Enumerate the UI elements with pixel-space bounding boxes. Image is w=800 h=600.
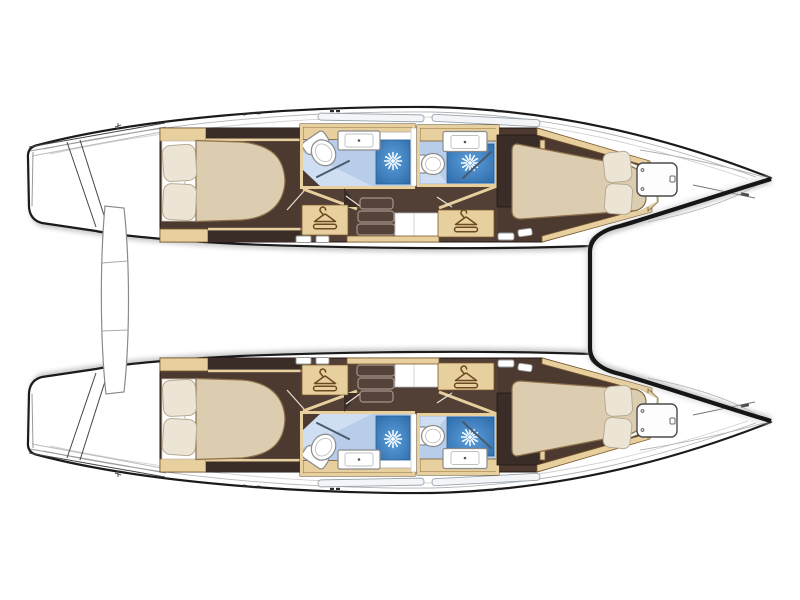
aft-cabin-locker	[208, 229, 303, 242]
pillow	[162, 418, 197, 456]
pillow	[604, 183, 633, 215]
aft-cabin-shelf	[160, 229, 208, 242]
pillow	[162, 183, 197, 221]
pillow	[603, 417, 633, 450]
sink-icon	[338, 450, 380, 469]
pillow	[604, 385, 633, 417]
wardrobe	[302, 205, 348, 235]
aft-cabin-berth	[162, 379, 285, 460]
pillow	[162, 144, 197, 182]
deck-window-strip	[318, 478, 424, 487]
toilet-icon	[418, 154, 445, 175]
floor-plan-canvas	[0, 0, 800, 600]
forward-bathroom	[417, 413, 499, 475]
sole-trim	[347, 236, 439, 242]
bed-mattress	[196, 379, 285, 460]
sink-icon	[443, 132, 487, 152]
aft-cabin-shelf	[160, 459, 206, 472]
bow-deck-hatch	[637, 404, 677, 437]
aft-cabin-locker	[208, 358, 303, 371]
wardrobe	[438, 363, 494, 390]
stair-landing	[395, 213, 440, 237]
bed-mattress	[196, 141, 285, 222]
shelf-trim	[208, 228, 303, 231]
catamaran-floor-plan	[0, 0, 800, 600]
aft-cabin-shelf	[160, 128, 206, 141]
stern-crossbar	[101, 206, 129, 394]
pillow	[162, 379, 197, 417]
stair-landing	[395, 363, 440, 387]
sink-icon	[443, 449, 487, 469]
wardrobe	[302, 365, 348, 395]
aft-cabin-berth	[162, 141, 285, 222]
hull-port	[28, 107, 772, 252]
sink-icon	[338, 131, 380, 150]
wardrobe	[438, 210, 494, 237]
hull-starboard	[28, 348, 772, 493]
toilet-icon	[418, 426, 445, 447]
forward-bathroom	[417, 125, 499, 187]
shelf-trim	[208, 370, 303, 373]
bow-deck-hatch	[637, 163, 677, 196]
aft-cabin-shelf	[160, 358, 208, 371]
pillow	[603, 151, 633, 184]
aft-bathroom	[300, 124, 415, 189]
deck-window-strip	[318, 113, 424, 122]
sole-trim	[347, 358, 439, 364]
aft-bathroom	[300, 411, 415, 476]
